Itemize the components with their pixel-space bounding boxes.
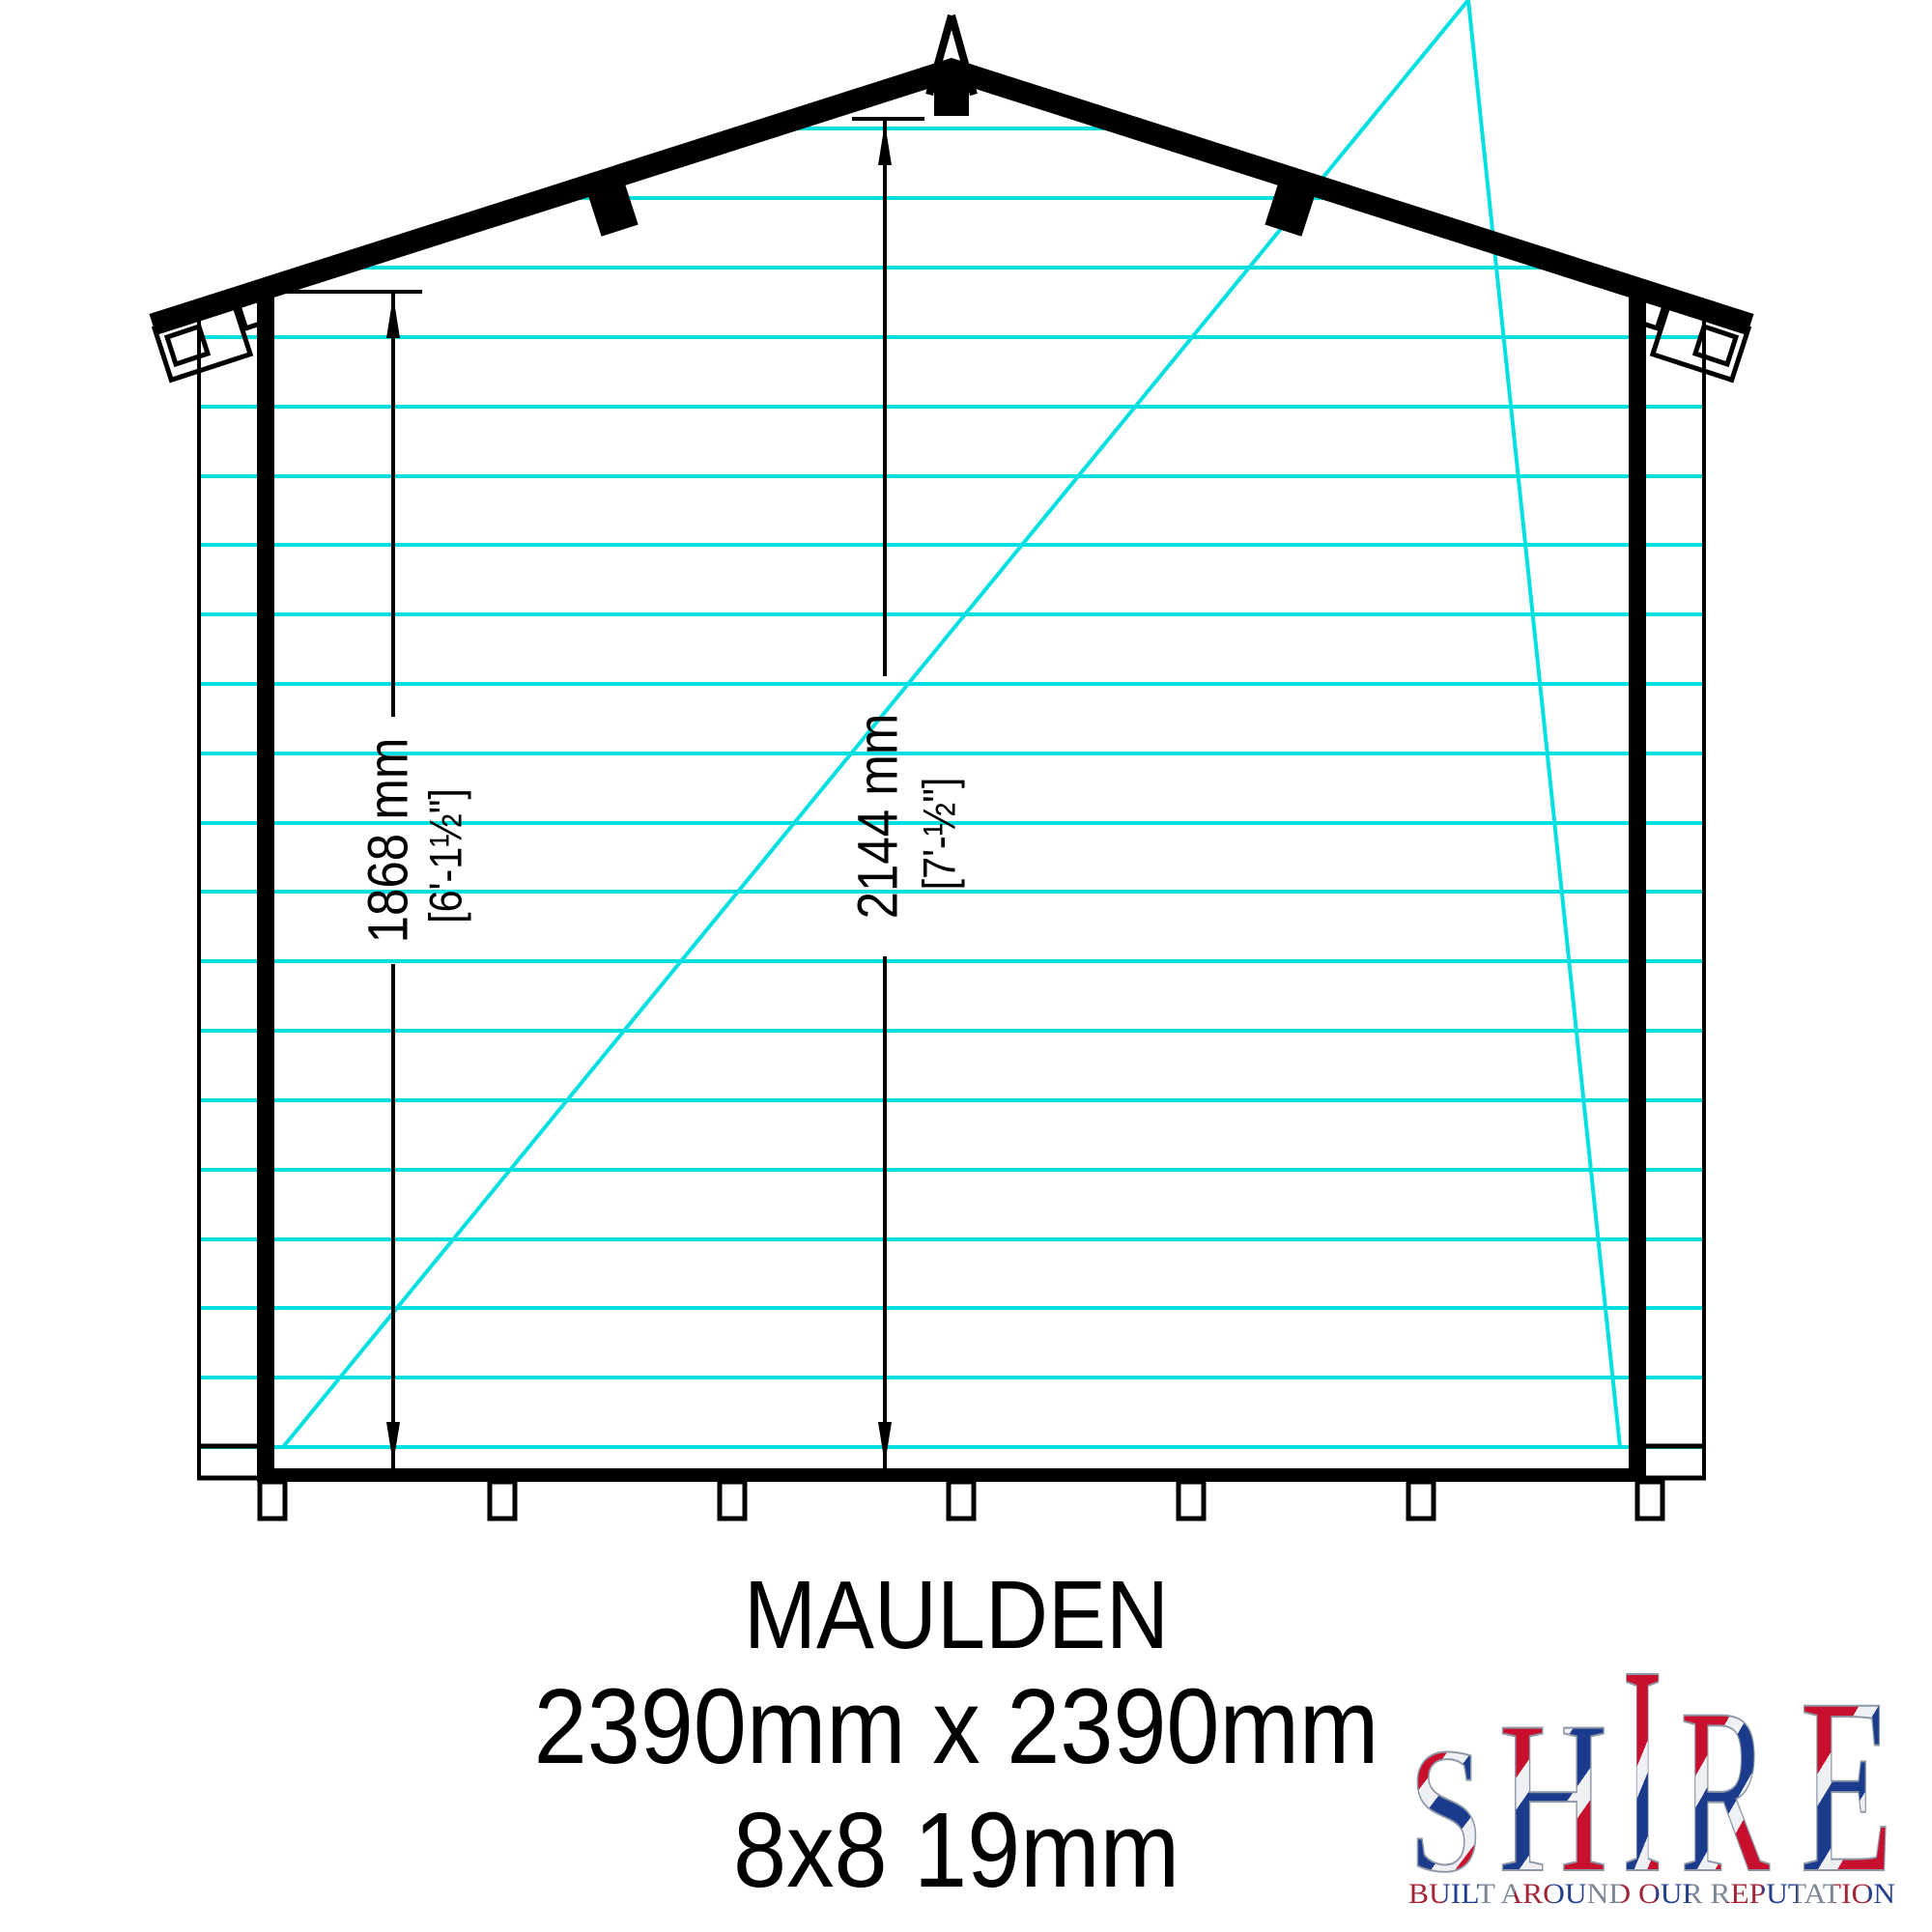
side-overhang-bottom-right (1646, 1446, 1706, 1478)
logo-tagline: BUILT AROUND OUR REPUTATION (1408, 1878, 1895, 1910)
base-foot (1179, 1482, 1204, 1519)
ridge-block (934, 68, 969, 116)
base-foot (1637, 1482, 1662, 1519)
base-foot (1408, 1482, 1434, 1519)
dimension-eaves-height: 1868 mm [6'-1½"] (280, 292, 471, 1468)
title-block: MAULDEN 2390mm x 2390mm 8x8 19mm (534, 1562, 1379, 1911)
base-foot (490, 1482, 515, 1519)
arrowhead-up (386, 296, 400, 338)
corner-post-left (257, 288, 274, 1470)
arrowhead-down (878, 1422, 892, 1464)
front-elevation-drawing: 1868 mm [6'-1½"] 2144 mm [7'-½"] MAULDEN… (0, 0, 1932, 1932)
arrowhead-down (386, 1422, 400, 1464)
base-foot (949, 1482, 974, 1519)
dimension-ridge-height: 2144 mm [7'-½"] (847, 119, 965, 1468)
cladding-board-line (1468, 0, 1620, 1447)
product-dimensions: 2390mm x 2390mm (534, 1667, 1379, 1786)
dimension-label-eaves-mm: 1868 mm (357, 738, 420, 944)
product-name: MAULDEN (744, 1562, 1169, 1669)
shire-logo: S H I R E BUILT AROUND OUR REPUTATION (1408, 1605, 1895, 1932)
dimension-label-eaves-imperial: [6'-1½"] (421, 788, 471, 923)
base-feet (260, 1482, 1662, 1519)
base-foot (260, 1482, 285, 1519)
product-spec: 8x8 19mm (733, 1791, 1179, 1910)
dimension-label-ridge-mm: 2144 mm (847, 714, 910, 920)
dimension-label-ridge-imperial: [7'-½"] (915, 778, 965, 891)
shed-elevation-sheet: 1868 mm [6'-1½"] 2144 mm [7'-½"] MAULDEN… (0, 0, 1932, 1932)
side-overhang-bottom-left (197, 1446, 257, 1478)
cladding-lines (199, 0, 1702, 1447)
corner-post-right (1629, 288, 1646, 1470)
base (257, 1468, 1662, 1519)
base-foot (720, 1482, 745, 1519)
